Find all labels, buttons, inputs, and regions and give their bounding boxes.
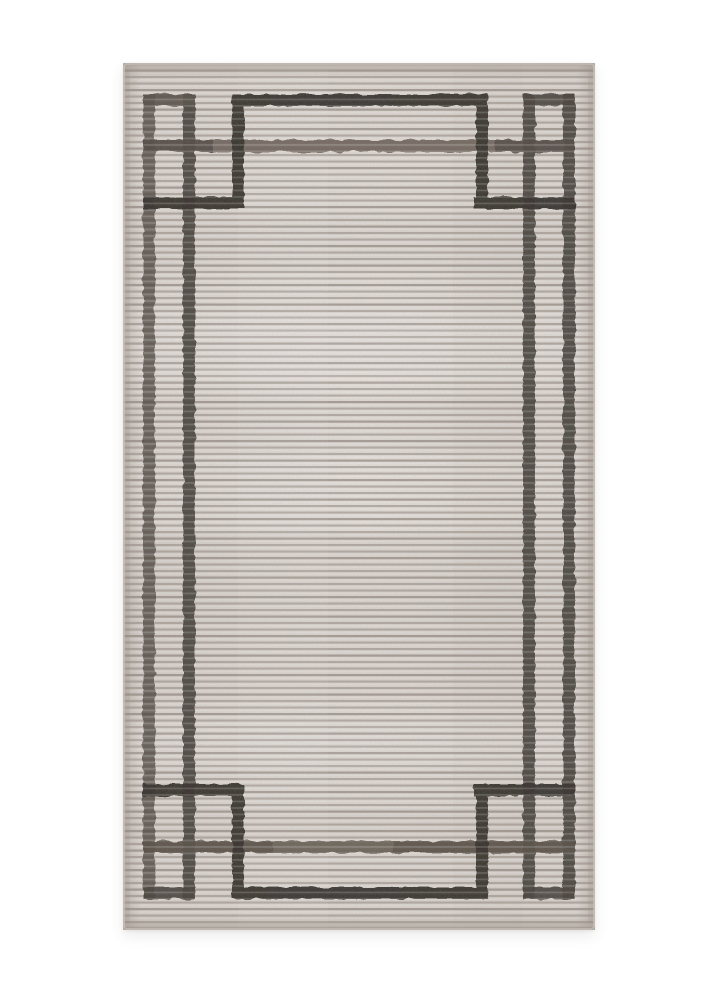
- rug-graphic: [123, 63, 595, 930]
- fabric-grain: [123, 63, 595, 930]
- rug: [123, 63, 595, 930]
- photo-background: [0, 0, 719, 1000]
